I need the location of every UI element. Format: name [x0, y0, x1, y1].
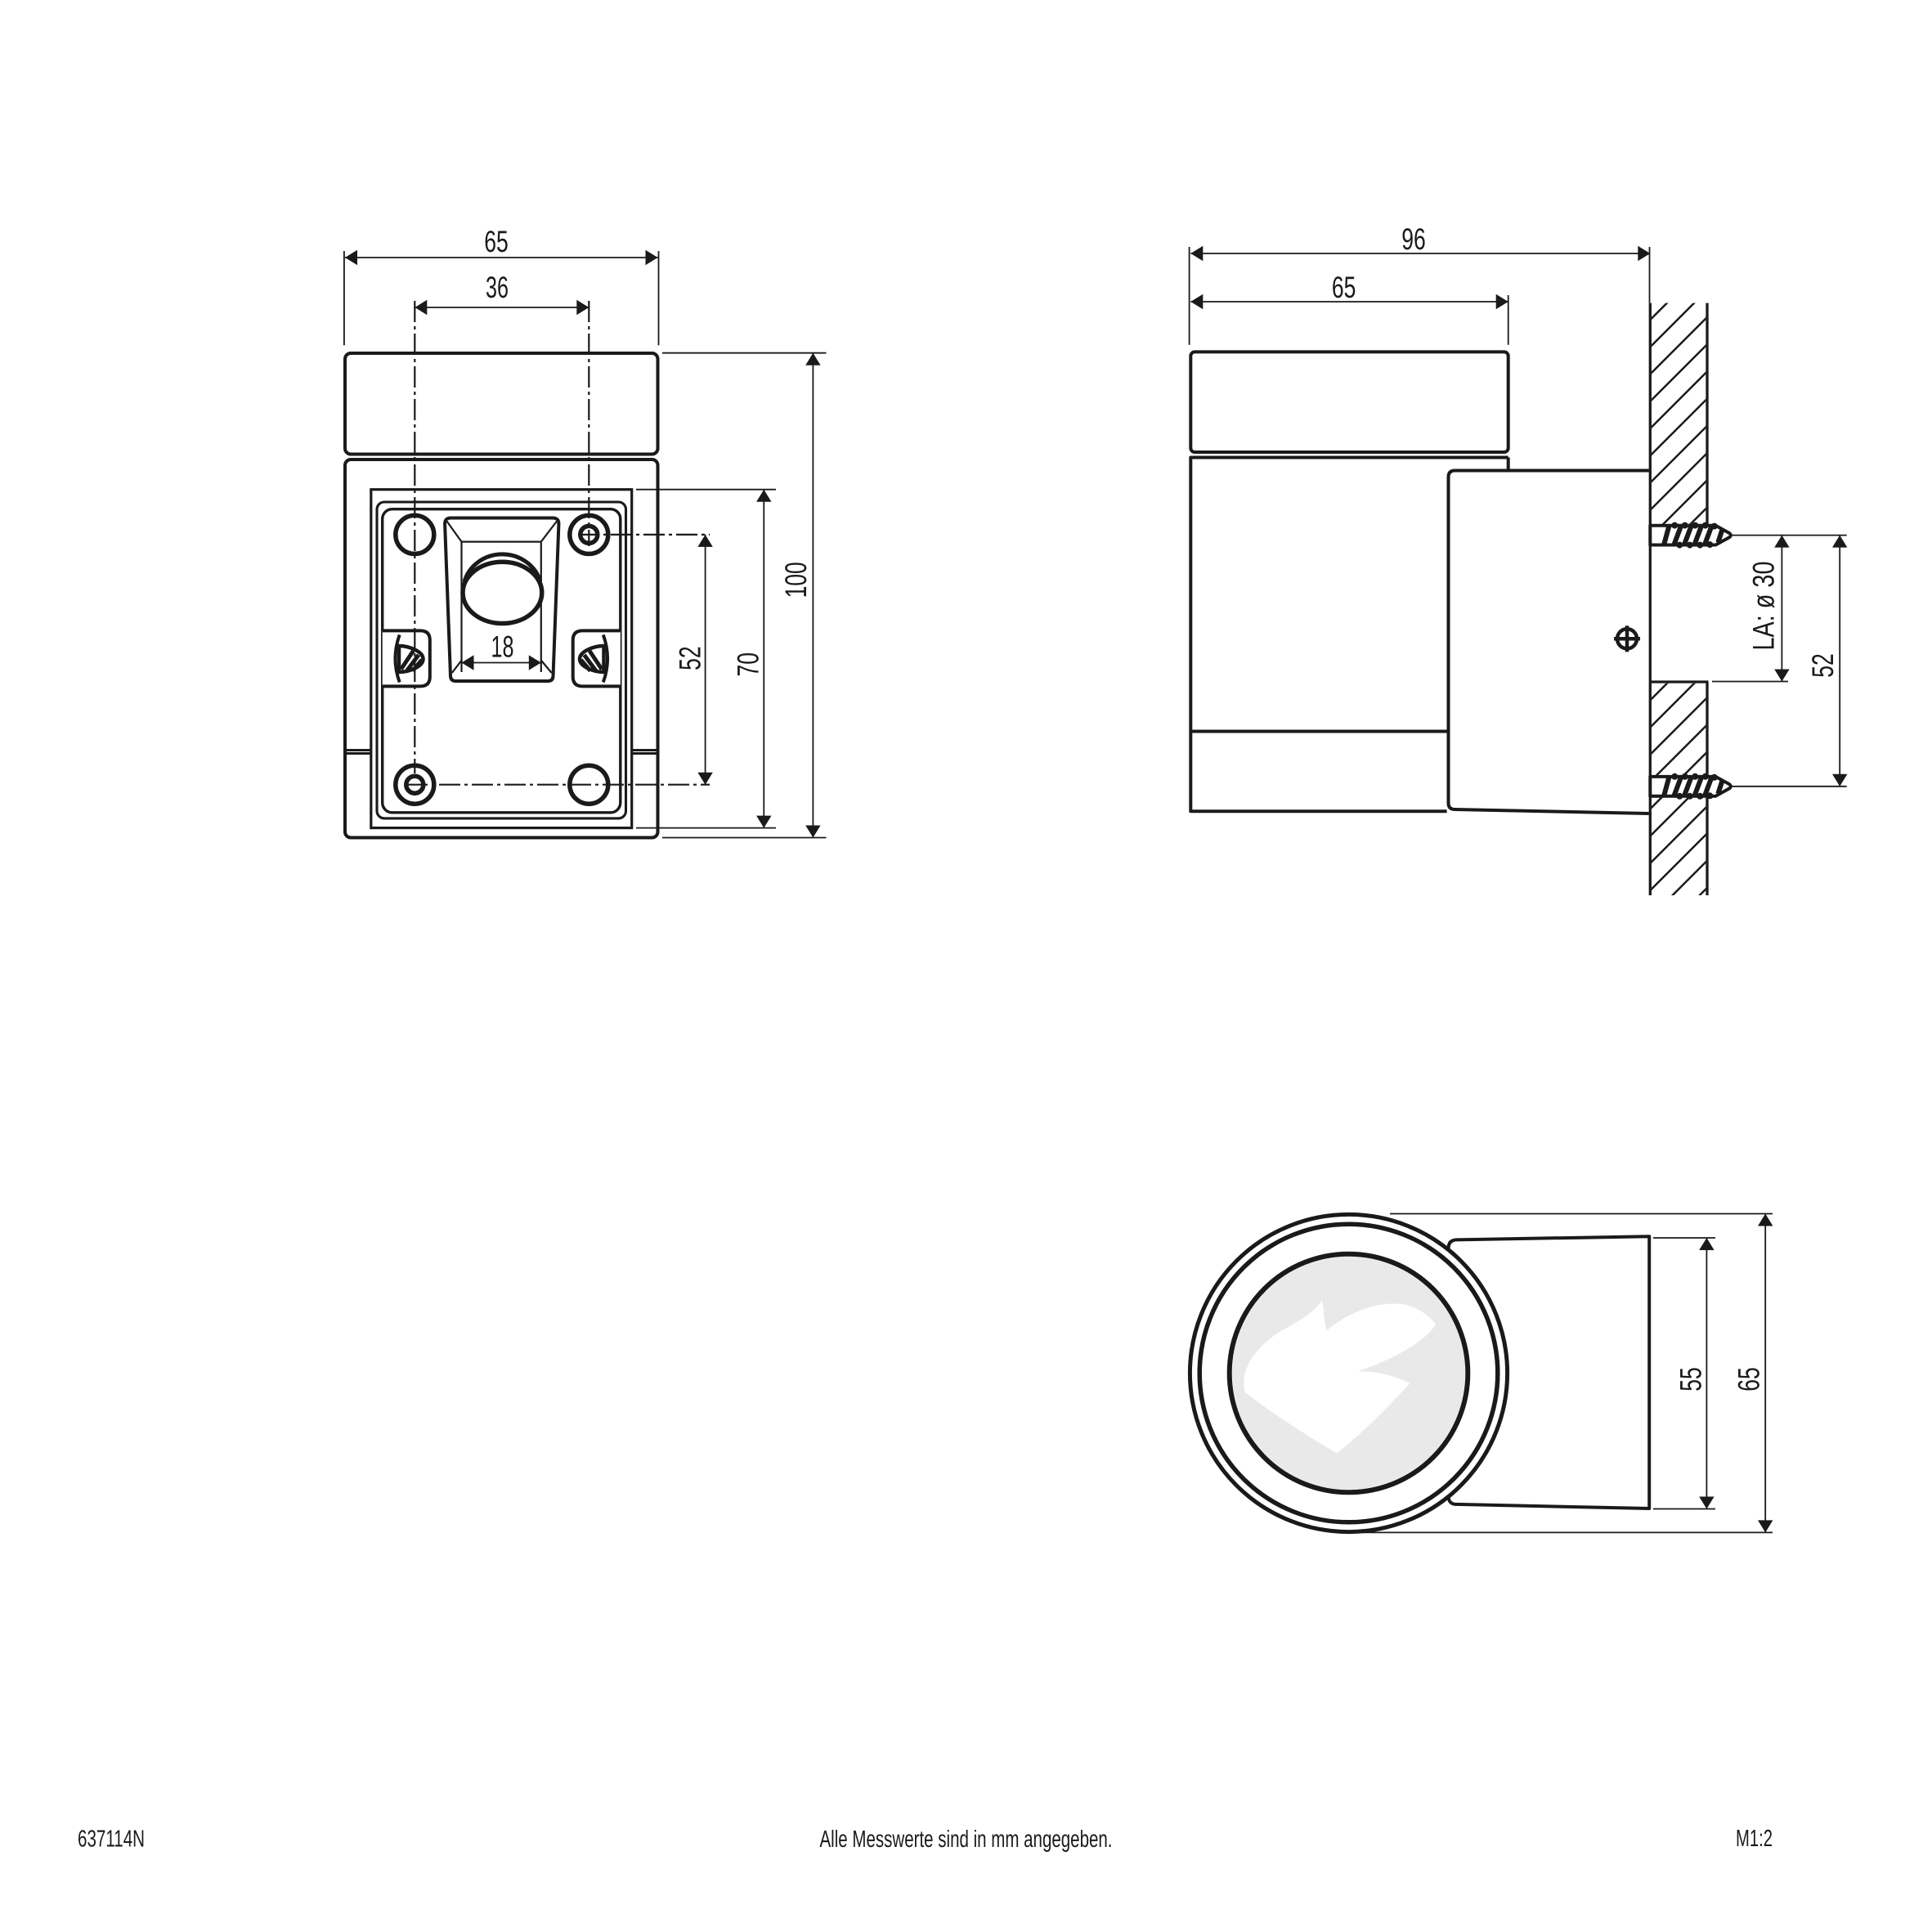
svg-text:65: 65: [1733, 1367, 1766, 1392]
svg-text:52: 52: [674, 646, 707, 670]
svg-text:96: 96: [1401, 222, 1426, 256]
svg-text:52: 52: [1806, 653, 1840, 678]
svg-text:65: 65: [484, 225, 509, 258]
svg-text:36: 36: [486, 271, 509, 304]
svg-text:65: 65: [1332, 271, 1356, 304]
svg-text:70: 70: [732, 652, 765, 677]
svg-text:637114N: 637114N: [78, 1827, 145, 1853]
svg-text:18: 18: [491, 630, 514, 664]
svg-text:55: 55: [1674, 1367, 1707, 1392]
svg-text:LA: ø 30: LA: ø 30: [1747, 562, 1781, 651]
svg-text:M1:2: M1:2: [1736, 1826, 1773, 1852]
svg-text:Alle Messwerte sind in mm ange: Alle Messwerte sind in mm angegeben.: [820, 1827, 1113, 1853]
svg-text:100: 100: [779, 562, 813, 598]
